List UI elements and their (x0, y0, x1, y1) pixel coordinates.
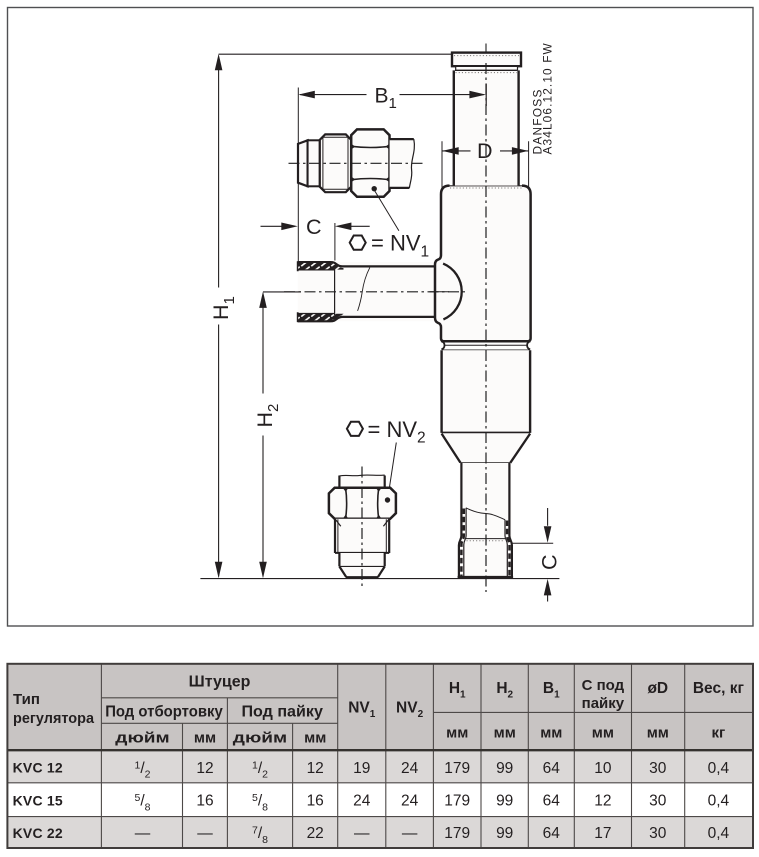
svg-text:дюйм: дюйм (233, 729, 287, 746)
svg-text:24: 24 (401, 793, 419, 810)
svg-text:12: 12 (307, 760, 324, 777)
svg-text:24: 24 (353, 793, 371, 810)
svg-text:KVC 15: KVC 15 (13, 793, 63, 809)
svg-text:0,4: 0,4 (708, 760, 730, 777)
svg-text:99: 99 (496, 760, 513, 777)
svg-text:Тип: Тип (13, 691, 40, 708)
svg-text:179: 179 (444, 825, 470, 842)
svg-text:мм: мм (647, 724, 669, 741)
svg-text:30: 30 (649, 825, 667, 842)
svg-text:C: C (306, 215, 322, 239)
svg-text:Под пайку: Под пайку (242, 704, 324, 721)
svg-text:регулятора: регулятора (13, 710, 95, 727)
svg-text:пайку: пайку (582, 695, 625, 712)
svg-text:Вес, кг: Вес, кг (693, 680, 745, 697)
svg-text:64: 64 (543, 793, 561, 810)
svg-text:0,4: 0,4 (708, 793, 730, 810)
svg-text:дюйм: дюйм (115, 729, 169, 746)
svg-text:64: 64 (543, 760, 561, 777)
svg-text:—: — (135, 825, 151, 842)
svg-text:64: 64 (543, 825, 561, 842)
svg-text:22: 22 (307, 825, 324, 842)
svg-text:С под: С под (582, 677, 625, 694)
svg-text:A34L06.12.10 FW: A34L06.12.10 FW (541, 42, 555, 154)
svg-text:мм: мм (592, 724, 614, 741)
svg-text:мм: мм (540, 724, 562, 741)
svg-text:12: 12 (196, 760, 213, 777)
svg-text:16: 16 (307, 793, 324, 810)
svg-text:179: 179 (444, 793, 470, 810)
svg-text:12: 12 (594, 793, 611, 810)
svg-text:мм: мм (494, 724, 516, 741)
svg-text:Штуцер: Штуцер (189, 673, 251, 690)
svg-text:179: 179 (444, 760, 470, 777)
svg-text:19: 19 (353, 760, 370, 777)
svg-text:—: — (354, 825, 370, 842)
svg-text:30: 30 (649, 793, 667, 810)
svg-text:мм: мм (446, 724, 468, 741)
svg-text:10: 10 (594, 760, 612, 777)
svg-text:0,4: 0,4 (708, 825, 730, 842)
svg-text:—: — (402, 825, 418, 842)
svg-text:—: — (197, 825, 213, 842)
svg-text:KVC 12: KVC 12 (13, 760, 63, 776)
svg-text:99: 99 (496, 825, 513, 842)
svg-text:Под отбортовку: Под отбортовку (105, 704, 223, 721)
svg-text:мм: мм (304, 729, 326, 746)
svg-text:24: 24 (401, 760, 419, 777)
svg-text:C: C (537, 554, 561, 570)
svg-text:17: 17 (594, 825, 611, 842)
svg-text:16: 16 (196, 793, 213, 810)
svg-text:кг: кг (712, 724, 726, 741)
svg-text:99: 99 (496, 793, 513, 810)
svg-text:D: D (477, 139, 493, 163)
svg-text:KVC 22: KVC 22 (13, 825, 63, 841)
svg-text:мм: мм (194, 729, 216, 746)
svg-text:øD: øD (647, 680, 668, 697)
svg-text:30: 30 (649, 760, 667, 777)
